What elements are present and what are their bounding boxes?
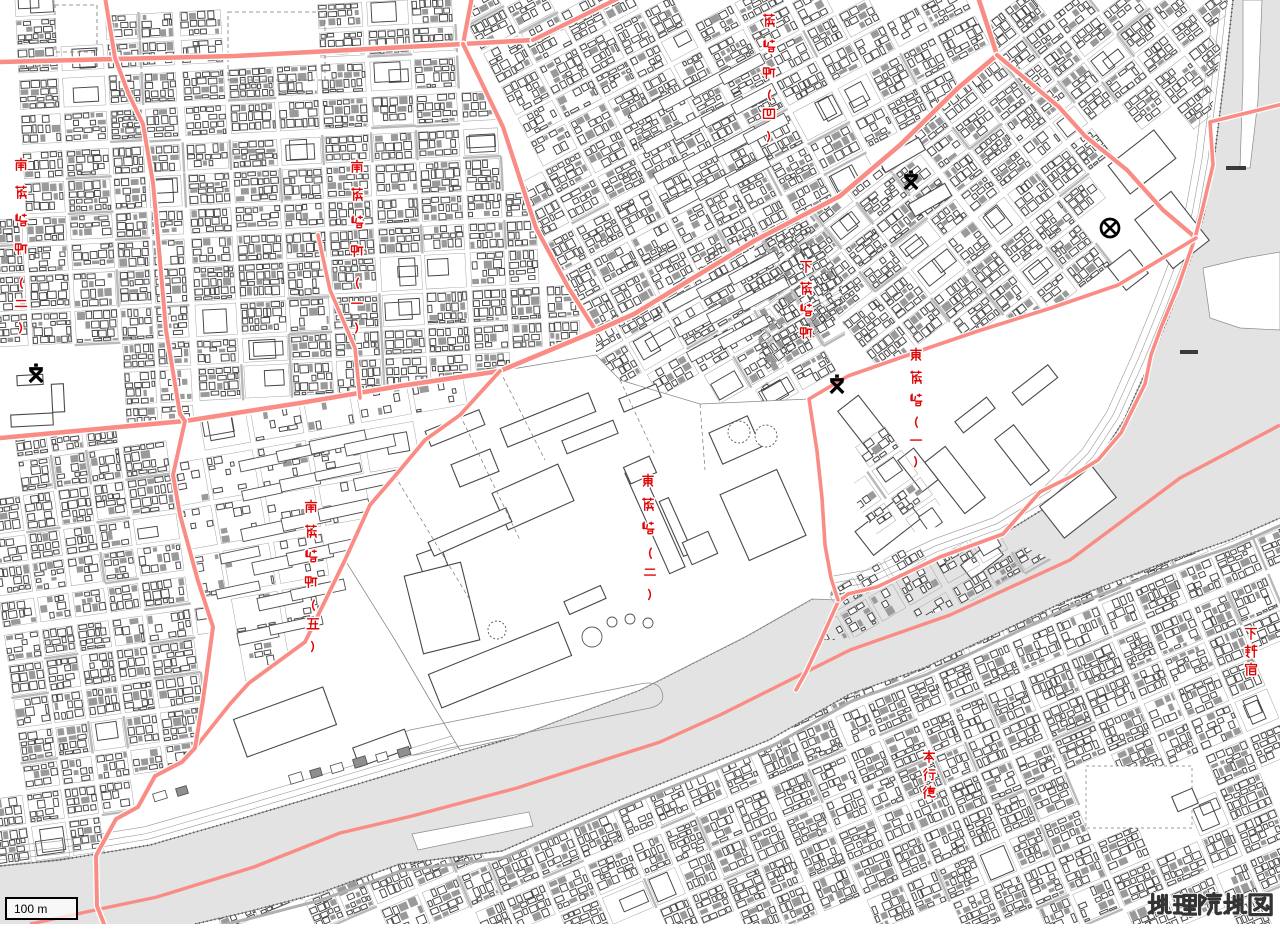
svg-text:100 m: 100 m	[14, 902, 47, 916]
